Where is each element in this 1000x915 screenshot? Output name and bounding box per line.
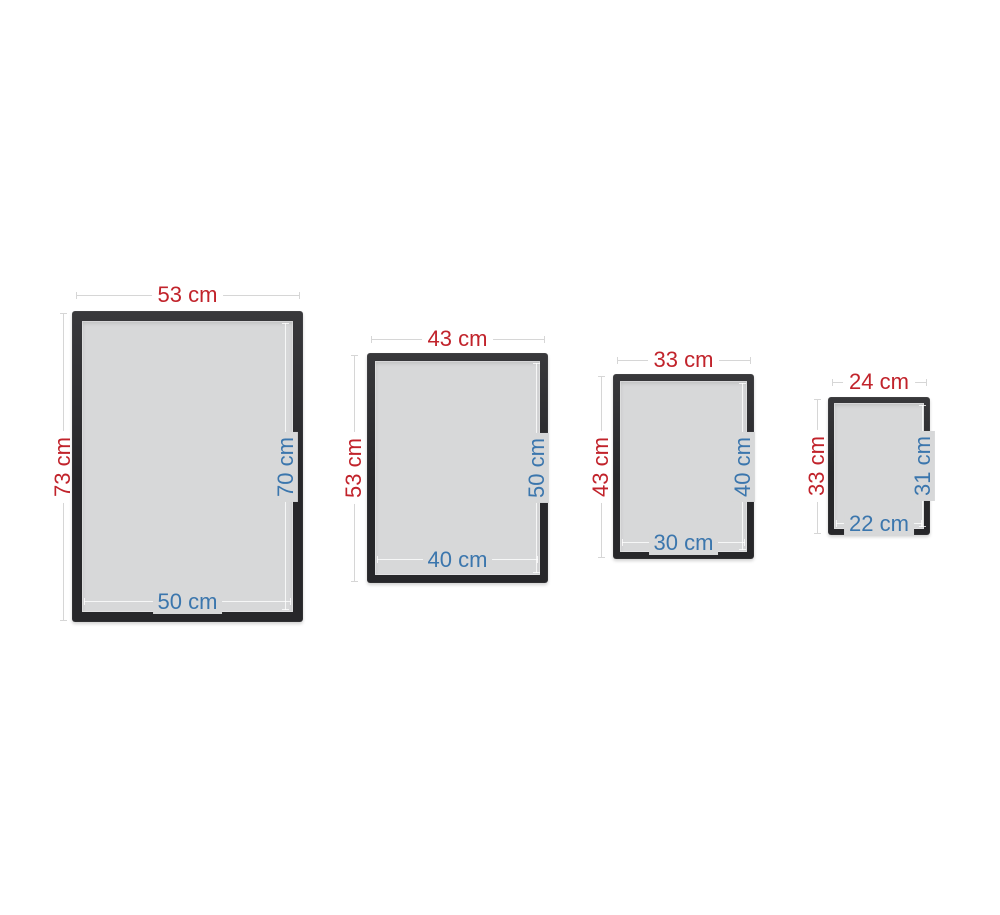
outer-width-label: 24 cm (843, 370, 915, 394)
outer-width-label: 43 cm (422, 327, 494, 351)
frame-group-43x53: 43 cm 53 cm 40 cm 50 cm (367, 353, 548, 583)
frame-glass: 22 cm 31 cm (834, 403, 924, 529)
frame-group-24x33: 24 cm 33 cm 22 cm 31 cm (828, 397, 930, 535)
outer-height-label: 53 cm (342, 432, 366, 504)
inner-width-label: 22 cm (844, 512, 914, 536)
picture-frame: 30 cm 40 cm (613, 374, 754, 559)
outer-height-label: 33 cm (805, 430, 829, 502)
outer-width-label: 53 cm (152, 283, 224, 307)
picture-frame: 40 cm 50 cm (367, 353, 548, 583)
inner-width-label: 40 cm (423, 548, 493, 572)
frame-glass: 30 cm 40 cm (620, 381, 747, 552)
outer-height-label: 43 cm (589, 431, 613, 503)
frame-group-53x73: 53 cm 73 cm 50 cm 70 cm (72, 311, 303, 622)
picture-frame: 50 cm 70 cm (72, 311, 303, 622)
frame-glass: 50 cm 70 cm (82, 321, 293, 612)
inner-width-label: 50 cm (153, 590, 223, 614)
inner-width-label: 30 cm (649, 531, 719, 555)
inner-height-label: 50 cm (525, 433, 549, 503)
frame-sizes-diagram: 53 cm 73 cm 50 cm 70 cm 43 cm 53 cm 40 c… (0, 0, 1000, 915)
inner-height-label: 70 cm (274, 432, 298, 502)
frame-glass: 40 cm 50 cm (375, 361, 540, 575)
outer-width-label: 33 cm (648, 348, 720, 372)
frame-group-33x43: 33 cm 43 cm 30 cm 40 cm (613, 374, 754, 559)
inner-height-label: 31 cm (911, 431, 935, 501)
picture-frame: 22 cm 31 cm (828, 397, 930, 535)
inner-height-label: 40 cm (731, 432, 755, 502)
